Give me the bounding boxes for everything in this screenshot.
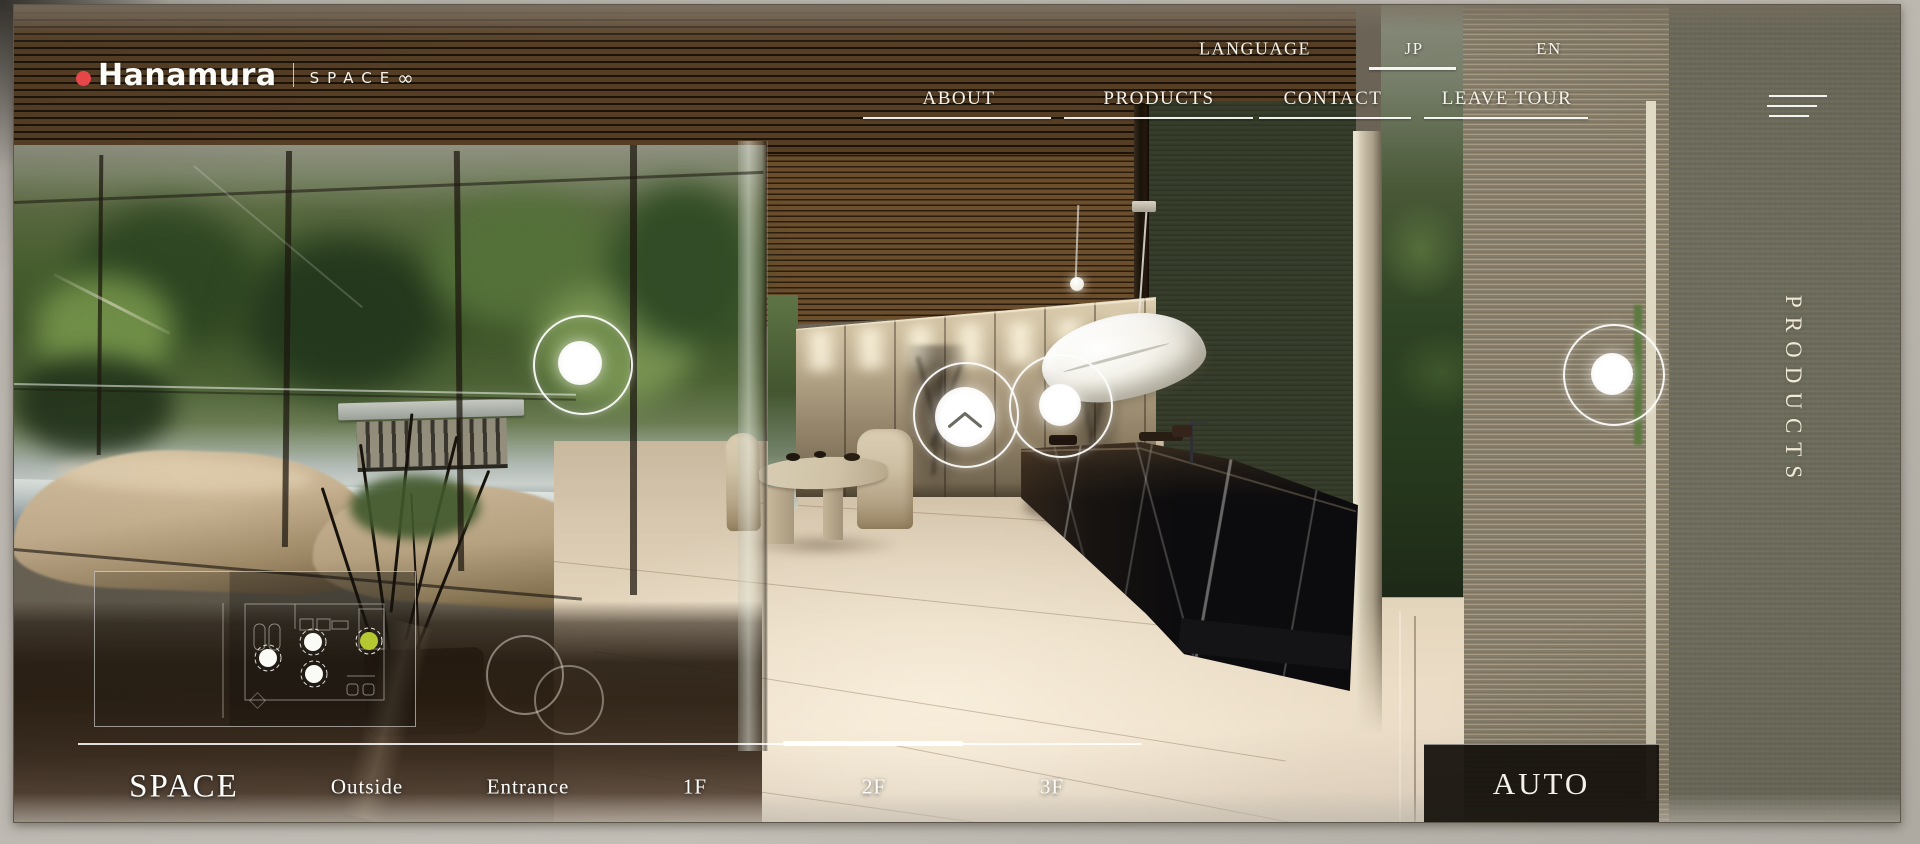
scene-window-post [1134, 105, 1149, 709]
island-floor-shadow [1023, 498, 1167, 567]
hamburger-line [1767, 105, 1817, 107]
window-transom [14, 388, 576, 401]
table-bowl [844, 453, 860, 461]
glass-reflection [194, 165, 363, 308]
lamp-ceiling-mount [1132, 201, 1156, 212]
floor-joint [554, 561, 1191, 629]
auto-button[interactable]: AUTO [1424, 744, 1659, 823]
scene-dining-table [758, 455, 887, 491]
island-plinth [1178, 618, 1353, 670]
floor-tab-2f[interactable]: 2F [862, 775, 886, 800]
floor-joint [734, 501, 1253, 534]
tree-blob [74, 205, 254, 345]
table-bowl [814, 451, 826, 458]
tree-blob [14, 355, 174, 455]
island-item [1139, 432, 1183, 441]
scene-exterior-column [1353, 131, 1382, 735]
window-mullion [454, 151, 464, 571]
nav-item-contact[interactable]: CONTACT [1284, 88, 1383, 110]
minimap-markers [255, 628, 382, 687]
scene-kitchen-island [1019, 441, 1371, 707]
minimap-marker[interactable] [304, 633, 322, 651]
scene-sofa-highlight [53, 452, 314, 497]
bottom-section-label: SPACE [129, 769, 239, 806]
glass-pane-edge [1399, 611, 1401, 822]
floor-progress-line [78, 743, 1142, 745]
scene-trees-sliver [768, 295, 798, 509]
scene-floor [554, 441, 1464, 822]
scene-pool [13, 479, 756, 561]
mesh-edge-highlight [1646, 101, 1656, 801]
plant-stem [413, 470, 490, 656]
plant-fern [350, 475, 480, 539]
language-jp-underline [1369, 67, 1456, 70]
hotspot-marker-right[interactable] [1591, 353, 1633, 395]
glass-reflection [53, 273, 170, 334]
hamburger-line [1769, 95, 1827, 97]
nav-item-about[interactable]: ABOUT [923, 88, 996, 110]
hotspot-marker-left[interactable] [558, 341, 602, 385]
lamp-cord [1138, 201, 1148, 319]
table-bowl [786, 453, 800, 461]
table-leg [764, 488, 794, 544]
nav-item-leave-tour[interactable]: LEAVE TOUR [1442, 88, 1573, 110]
logo-dot-icon [76, 71, 91, 86]
island-faucet [1190, 421, 1193, 463]
window-transom-highlight [14, 383, 576, 396]
wall-floor-shadow [796, 483, 1156, 497]
auto-button-label: AUTO [1493, 766, 1591, 802]
floor-joint [614, 771, 1248, 823]
house-facade [356, 418, 507, 472]
infinity-symbol: ∞ [397, 66, 414, 90]
hamburger-line [1769, 115, 1809, 117]
chevron-up-icon [945, 408, 985, 430]
island-faucet-spout [1190, 421, 1208, 424]
lamp-cord [1075, 205, 1079, 281]
island-top-edge [1139, 447, 1356, 512]
language-label: LANGUAGE [1199, 39, 1311, 60]
scene-mesh-panel-1 [1148, 101, 1356, 823]
nav-underline [863, 117, 1051, 119]
nav-underline [1424, 117, 1588, 119]
house-roof [338, 399, 524, 421]
wire-side-table [534, 665, 604, 735]
scene-chair [725, 433, 761, 532]
floor-tab-outside[interactable]: Outside [331, 775, 403, 800]
language-en[interactable]: EN [1536, 39, 1562, 59]
scene-left-glass [14, 145, 766, 553]
floor-joint [874, 741, 1512, 823]
page: Hanamura SPACE∞ LANGUAGE JP EN ABOUT PRO… [0, 0, 1920, 844]
scene-glass-corner [738, 141, 768, 751]
island-item [1172, 425, 1192, 437]
tree-blob [244, 235, 444, 395]
minimap-marker[interactable] [305, 665, 323, 683]
language-jp[interactable]: JP [1404, 39, 1423, 59]
floor-tab-1f[interactable]: 1F [683, 775, 707, 800]
logo-sub-text: SPACE∞ [310, 66, 414, 90]
nav-underline [1259, 117, 1411, 119]
scene-chair [857, 429, 913, 529]
scene-sofa [555, 492, 743, 602]
wall-cove-line [796, 298, 1155, 330]
minimap[interactable] [94, 571, 416, 727]
tour-viewport[interactable]: Hanamura SPACE∞ LANGUAGE JP EN ABOUT PRO… [13, 4, 1901, 823]
floor-progress-active-segment [783, 741, 963, 746]
tree-blob [34, 275, 174, 385]
scene-trees-gap [1381, 5, 1481, 822]
window-mullion [97, 155, 104, 455]
nav-item-products[interactable]: PRODUCTS [1103, 88, 1214, 110]
logo[interactable]: Hanamura SPACE∞ [76, 53, 414, 97]
logo-text: Hanamura [98, 58, 277, 93]
minimap-marker[interactable] [259, 649, 277, 667]
tree-blob [614, 185, 754, 345]
scene-ceiling-fade [14, 5, 1356, 45]
table-shadow [742, 533, 902, 557]
scene-ceiling-center [614, 155, 1156, 335]
table-leg [823, 488, 843, 540]
wire-side-table [486, 635, 564, 715]
minimap-marker-active[interactable] [360, 632, 378, 650]
floor-tab-entrance[interactable]: Entrance [487, 775, 570, 800]
floor-tab-3f[interactable]: 3F [1040, 775, 1064, 800]
window-mullion [282, 151, 292, 547]
logo-divider [293, 63, 294, 87]
hamburger-menu-icon[interactable] [1766, 91, 1828, 125]
glass-pane-edge [1414, 616, 1416, 822]
window-transom [14, 171, 763, 204]
top-fade [14, 5, 1900, 31]
floor-joint [594, 651, 1286, 761]
tree-blob [434, 195, 614, 325]
hotspot-marker-forward[interactable] [935, 387, 995, 447]
scene-distant-house [346, 399, 518, 487]
pendant-sphere-lamp [1070, 277, 1084, 291]
hotspot-marker-kitchen[interactable] [1039, 384, 1081, 426]
minimap-floorplan [95, 572, 415, 726]
nav-underline [1064, 117, 1253, 119]
vertical-products-label[interactable]: PRODUCTS [1780, 295, 1806, 487]
